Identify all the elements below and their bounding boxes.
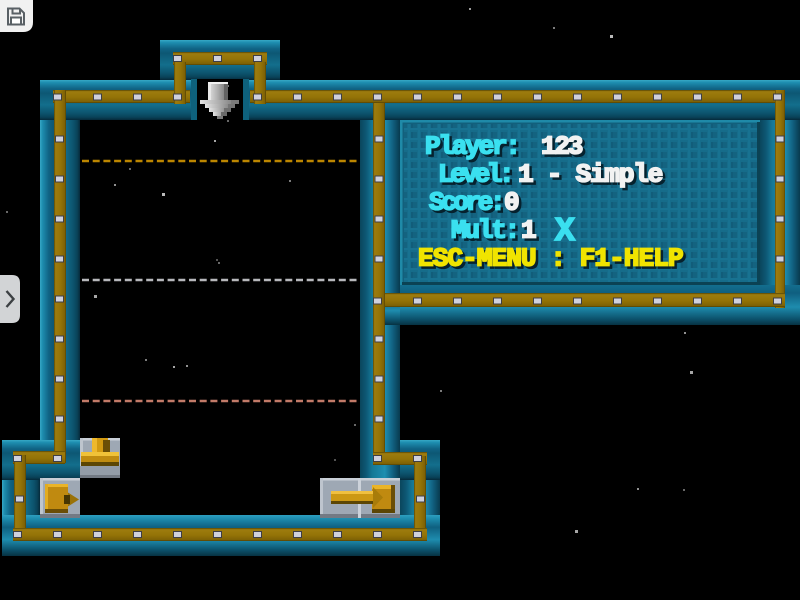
svg-text:Mult:: Mult: xyxy=(451,216,518,246)
svg-text:0: 0 xyxy=(504,188,519,218)
svg-text:Score:: Score: xyxy=(429,188,502,218)
svg-text:1 - Simple: 1 - Simple xyxy=(518,160,663,190)
svg-text:Level:: Level: xyxy=(438,160,511,190)
svg-text:123: 123 xyxy=(541,132,583,162)
svg-text:1: 1 xyxy=(521,216,536,246)
svg-text:ESC-MENU : F1-HELP: ESC-MENU : F1-HELP xyxy=(418,244,683,274)
svg-text:Player:: Player: xyxy=(425,132,519,162)
